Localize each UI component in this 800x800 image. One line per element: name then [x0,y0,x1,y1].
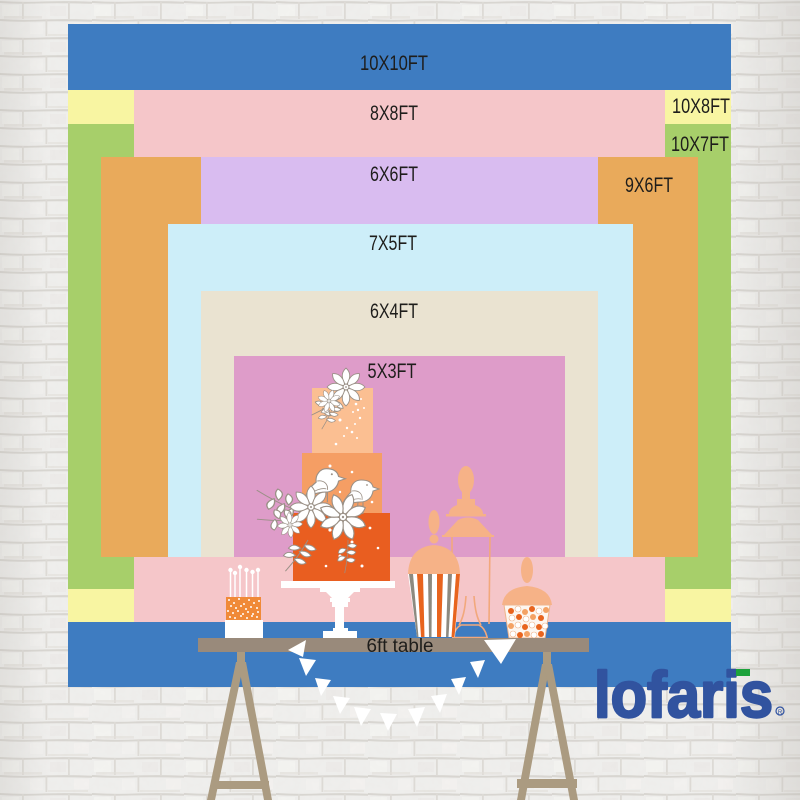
svg-text:6ft table: 6ft table [367,636,434,657]
svg-text:8X8FT: 8X8FT [370,102,418,125]
svg-text:10X10FT: 10X10FT [360,52,428,75]
svg-text:9X6FT: 9X6FT [625,174,673,197]
svg-text:6X6FT: 6X6FT [370,163,418,186]
svg-text:10X8FT: 10X8FT [672,95,730,118]
svg-text:6X4FT: 6X4FT [370,300,418,323]
svg-text:lofaris: lofaris [594,658,773,731]
svg-text:10X7FT: 10X7FT [671,133,729,156]
svg-text:7X5FT: 7X5FT [369,232,417,255]
svg-text:5X3FT: 5X3FT [368,360,417,383]
svg-text:R: R [778,710,783,716]
